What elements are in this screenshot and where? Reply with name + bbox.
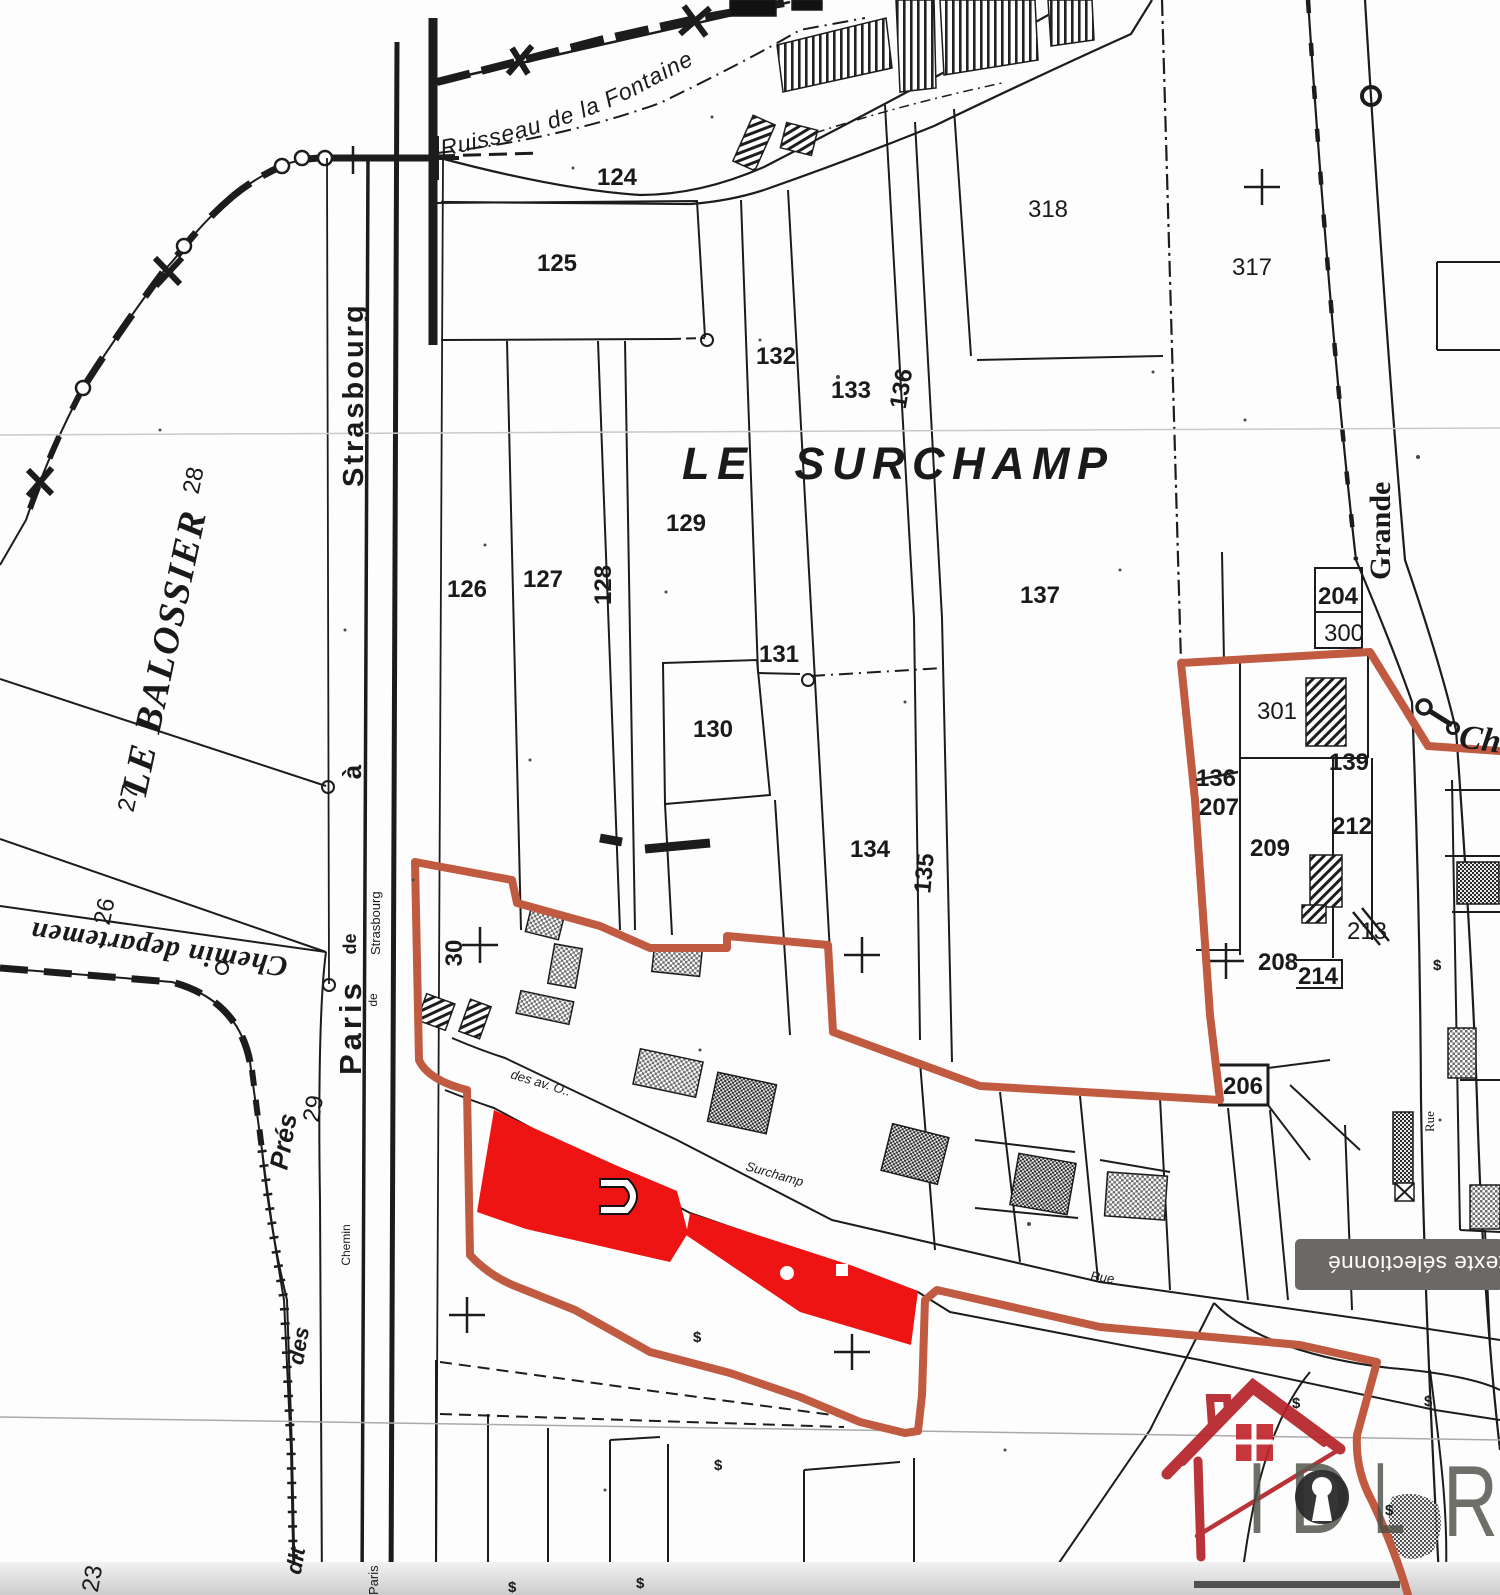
svg-text:$: $ <box>508 1579 517 1595</box>
svg-text:127: 127 <box>523 566 563 593</box>
svg-text:213: 213 <box>1347 918 1387 945</box>
svg-text:133: 133 <box>831 377 871 404</box>
svg-text:$: $ <box>1424 1393 1433 1410</box>
svg-text:$: $ <box>693 1329 702 1346</box>
svg-text:28: 28 <box>178 465 210 497</box>
svg-text:Rue: Rue <box>1422 1111 1437 1132</box>
svg-text:125: 125 <box>537 250 577 277</box>
svg-text:131: 131 <box>759 641 799 668</box>
svg-text:301: 301 <box>1257 698 1297 725</box>
svg-text:126: 126 <box>447 576 487 603</box>
svg-text:$: $ <box>636 1575 645 1592</box>
svg-text:$: $ <box>1433 957 1442 974</box>
svg-text:204: 204 <box>1318 583 1359 610</box>
svg-text:208: 208 <box>1258 949 1298 976</box>
svg-text:134: 134 <box>850 836 891 863</box>
svg-text:212: 212 <box>1332 813 1372 840</box>
svg-text:207: 207 <box>1199 794 1239 821</box>
svg-text:R: R <box>1443 1446 1498 1558</box>
svg-text:206: 206 <box>1223 1073 1263 1100</box>
svg-text:I: I <box>1247 1443 1267 1555</box>
svg-text:209: 209 <box>1250 835 1290 862</box>
svg-text:128: 128 <box>590 565 617 605</box>
svg-text:L: L <box>1373 1443 1405 1555</box>
svg-text:124: 124 <box>597 164 638 191</box>
svg-text:LE SURCHAMP: LE SURCHAMP <box>682 438 1115 489</box>
svg-text:135: 135 <box>909 852 939 894</box>
svg-text:129: 129 <box>666 510 706 537</box>
svg-text:139: 139 <box>1329 749 1369 776</box>
svg-text:Paris: Paris <box>366 1565 381 1595</box>
svg-text:130: 130 <box>693 716 733 743</box>
svg-text:300: 300 <box>1324 620 1364 647</box>
svg-text:Strasbourg: Strasbourg <box>338 302 370 487</box>
svg-text:de: de <box>366 993 380 1007</box>
svg-text:Ch: Ch <box>1457 718 1500 760</box>
svg-text:de: de <box>340 933 360 954</box>
svg-text:23: 23 <box>77 1563 108 1594</box>
svg-text:132: 132 <box>756 343 796 370</box>
svg-text:318: 318 <box>1028 196 1068 223</box>
svg-text:30: 30 <box>441 940 468 967</box>
svg-text:Strasbourg: Strasbourg <box>368 891 383 955</box>
svg-text:Paris: Paris <box>333 979 368 1075</box>
svg-text:à: à <box>337 764 367 779</box>
svg-text:26: 26 <box>89 896 121 928</box>
svg-text:137: 137 <box>1020 582 1060 609</box>
svg-text:Grande: Grande <box>1364 482 1397 580</box>
svg-text:317: 317 <box>1232 254 1272 281</box>
svg-text:$: $ <box>714 1457 723 1474</box>
svg-text:214: 214 <box>1298 963 1339 990</box>
svg-text:29: 29 <box>298 1093 329 1124</box>
svg-text:Chemin: Chemin <box>339 1224 353 1265</box>
svg-text:texte sélectionné: texte sélectionné <box>1328 1251 1500 1276</box>
